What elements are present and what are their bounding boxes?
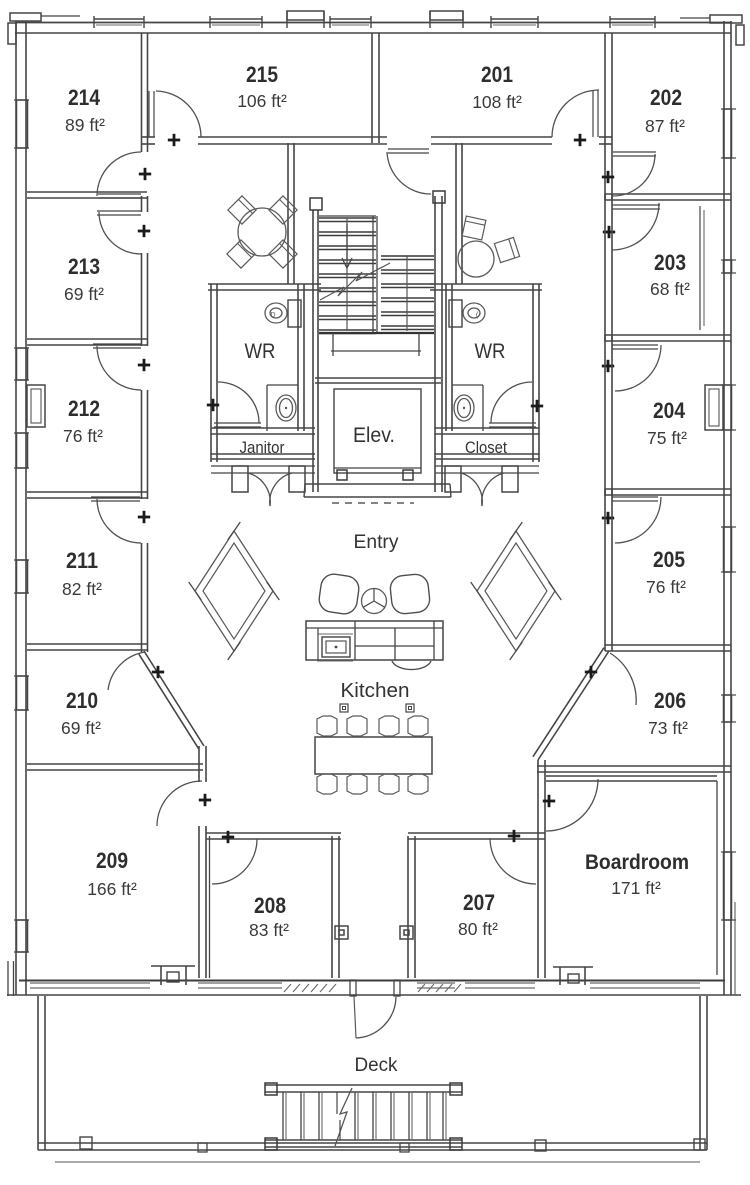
svg-text:WR: WR	[475, 340, 506, 363]
svg-text:209: 209	[96, 848, 128, 873]
svg-text:69 ft²: 69 ft²	[61, 718, 101, 738]
svg-text:203: 203	[654, 250, 686, 275]
svg-text:83 ft²: 83 ft²	[249, 920, 289, 940]
svg-text:Elev.: Elev.	[353, 424, 395, 447]
svg-text:166 ft²: 166 ft²	[87, 879, 137, 899]
svg-text:205: 205	[653, 547, 685, 572]
svg-text:Kitchen: Kitchen	[341, 680, 410, 702]
svg-text:D: D	[270, 312, 275, 319]
svg-text:202: 202	[650, 85, 682, 110]
svg-text:89 ft²: 89 ft²	[65, 115, 105, 135]
svg-text:211: 211	[66, 548, 98, 573]
svg-text:82 ft²: 82 ft²	[62, 579, 102, 599]
svg-text:106 ft²: 106 ft²	[237, 91, 287, 111]
svg-text:213: 213	[68, 254, 100, 279]
svg-text:210: 210	[66, 688, 98, 713]
svg-text:Entry: Entry	[354, 531, 399, 553]
svg-text:171 ft²: 171 ft²	[611, 878, 661, 898]
svg-text:68 ft²: 68 ft²	[650, 279, 690, 299]
svg-text:206: 206	[654, 688, 686, 713]
svg-text:WR: WR	[245, 340, 276, 363]
svg-text:207: 207	[463, 890, 495, 915]
svg-text:75 ft²: 75 ft²	[647, 428, 687, 448]
svg-text:Janitor: Janitor	[240, 439, 285, 457]
svg-text:73 ft²: 73 ft²	[648, 718, 688, 738]
svg-text:76 ft²: 76 ft²	[646, 577, 686, 597]
svg-text:Deck: Deck	[355, 1054, 398, 1076]
svg-text:80 ft²: 80 ft²	[458, 919, 498, 939]
svg-text:Closet: Closet	[465, 439, 507, 457]
svg-text:212: 212	[68, 396, 100, 421]
svg-text:208: 208	[254, 893, 286, 918]
svg-text:76 ft²: 76 ft²	[63, 426, 103, 446]
svg-text:204: 204	[653, 398, 686, 423]
svg-text:201: 201	[481, 62, 513, 87]
svg-text:69 ft²: 69 ft²	[64, 284, 104, 304]
svg-text:108 ft²: 108 ft²	[472, 92, 522, 112]
svg-text:215: 215	[246, 62, 278, 87]
svg-text:87 ft²: 87 ft²	[645, 116, 685, 136]
svg-text:Boardroom: Boardroom	[585, 851, 689, 874]
svg-text:214: 214	[68, 85, 101, 110]
